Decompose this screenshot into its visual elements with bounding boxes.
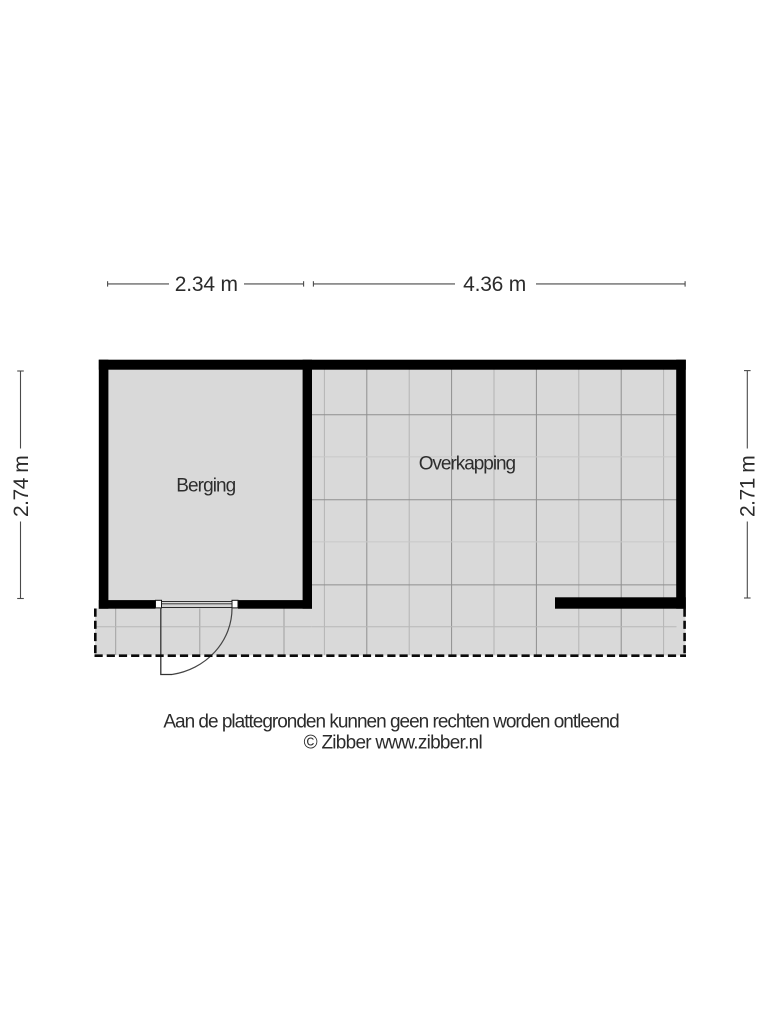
svg-text:2.71 m: 2.71 m <box>737 456 760 517</box>
svg-text:4.36 m: 4.36 m <box>463 273 526 296</box>
svg-text:Berging: Berging <box>176 476 235 497</box>
svg-text:2.34 m: 2.34 m <box>175 273 238 296</box>
svg-text:© Zibber www.zibber.nl: © Zibber www.zibber.nl <box>304 732 482 753</box>
svg-text:Overkapping: Overkapping <box>419 454 516 475</box>
svg-text:2.74 m: 2.74 m <box>10 456 33 517</box>
svg-text:Aan de plattegronden kunnen ge: Aan de plattegronden kunnen geen rechten… <box>163 711 619 732</box>
